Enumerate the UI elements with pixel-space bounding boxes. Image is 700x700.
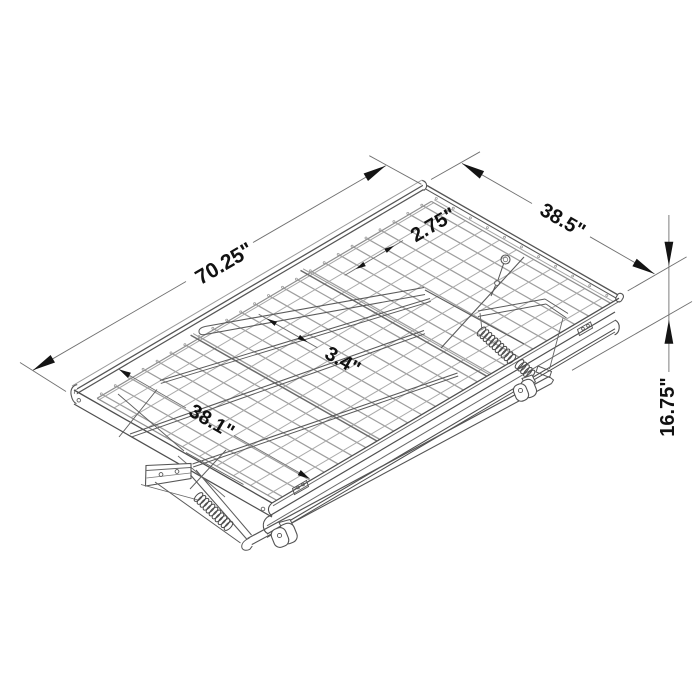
svg-text:16.75": 16.75"	[657, 377, 679, 437]
